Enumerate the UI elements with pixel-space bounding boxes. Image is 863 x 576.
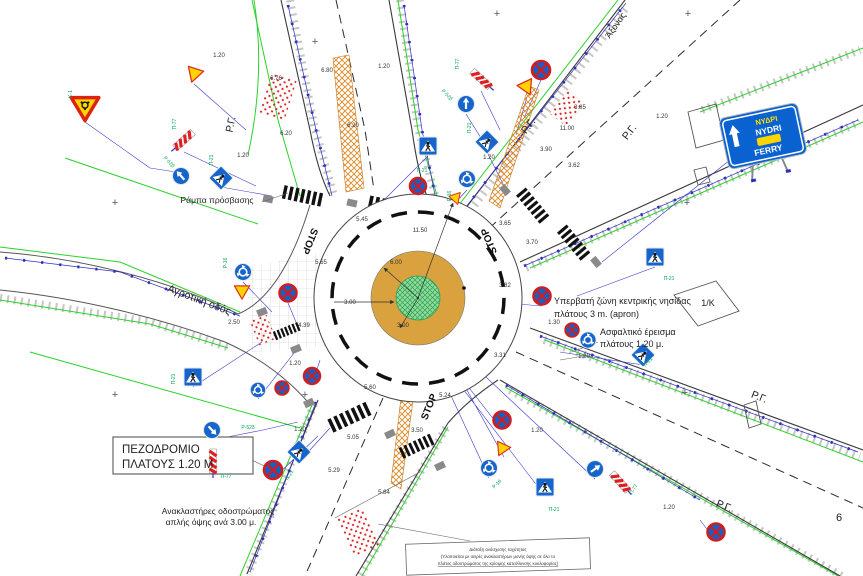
sign-code: Ρ-52β	[440, 88, 454, 102]
sign-code: Π-21	[285, 469, 296, 482]
dim: 5.24	[439, 393, 451, 399]
grid-cross: +	[682, 387, 688, 399]
grid-cross: +	[685, 8, 691, 20]
page-number: 6	[836, 512, 842, 524]
dim: 1.20	[378, 64, 390, 70]
block-label: 1/K	[701, 298, 715, 308]
dim: 1.20	[289, 361, 301, 367]
dim: 11.50	[413, 228, 428, 234]
roundabout-mandatory-sign	[481, 460, 498, 477]
pedestrian-crossing-sign	[536, 478, 554, 496]
nydri-ferry-sign	[718, 102, 811, 186]
sign-code: Π-77	[172, 118, 178, 129]
dim: 6.00	[390, 260, 402, 266]
dim: 5.60	[364, 385, 376, 391]
dim: 3.50	[411, 428, 423, 434]
sign-code: Π-21	[209, 154, 215, 165]
grid-cross: +	[494, 8, 500, 20]
dim: 3.85	[574, 105, 586, 111]
no-stopping-sign	[279, 284, 296, 301]
sign-code: Π-21	[549, 507, 560, 513]
no-stopping-sign	[275, 381, 289, 395]
no-stopping-sign	[304, 368, 320, 384]
pedestrian-crossing-sign	[209, 166, 233, 190]
hazard-marker-sign	[470, 68, 496, 93]
grid-cross: +	[312, 36, 318, 48]
dim: 1.20	[531, 428, 543, 434]
sign-code: Π-77	[455, 58, 461, 69]
no-stopping-sign	[493, 411, 510, 428]
sign-code: Π-21	[171, 373, 177, 384]
dim: 1.20	[483, 155, 495, 161]
dim: 3.65	[499, 221, 511, 227]
roundabout	[314, 194, 522, 402]
note-shoulder-line1: Ασφαλτικό έρεισμα	[600, 327, 676, 337]
dim: 1.30	[548, 320, 560, 326]
sign-code: Π-77	[629, 483, 640, 496]
sign-code: Ρ-16	[447, 191, 453, 202]
note-sidewalk-line1: ΠΕΖΟΔΡΟΜΙΟ	[122, 444, 200, 456]
sign-code: Π-21	[417, 168, 428, 174]
note-reflectors-line1: Ανακλαστήρες οδοστρώματος	[162, 506, 275, 516]
dim: 5.65	[315, 260, 327, 266]
dim: 5.84	[378, 490, 390, 496]
roundabout-mandatory-sign	[580, 332, 596, 348]
sign-code: Ρ-16	[491, 478, 503, 490]
grid-cross: +	[112, 197, 118, 209]
dim: 5.05	[347, 435, 359, 441]
warning-triangle-sign	[184, 66, 204, 84]
note-apron-line1: Υπερβατή ζώνη κεντρικής νησίδας	[554, 296, 691, 306]
dim: 6.76	[270, 76, 282, 82]
dim: 3.00	[344, 300, 356, 306]
mandatory-direction-sign	[458, 96, 475, 113]
dim: 5.29	[328, 468, 340, 474]
sign-code: Ρ-52β	[162, 155, 176, 169]
note-access-ramp: Ράμπα πρόσβασης	[180, 195, 253, 205]
no-stopping-sign	[410, 178, 426, 194]
dim: 5.45	[356, 217, 368, 223]
dim: 1.20	[656, 114, 668, 120]
roundabout-mandatory-sign	[250, 382, 265, 397]
pedestrian-crossing-sign	[419, 137, 437, 155]
pedestrian-crossing-sign	[646, 248, 664, 266]
note-box-line3: πλάτος οδοστρώματος της κρίσιμης κατεύθυ…	[438, 561, 559, 566]
site-plan-page: 1.206.766.801.206.206.201.205.4511.506.0…	[0, 0, 863, 576]
hazard-marker-sign	[169, 129, 195, 154]
dim: 1.20	[237, 153, 249, 159]
roundabout-mandatory-sign	[235, 264, 252, 281]
building-line-label: Ρ.Γ.	[224, 115, 239, 133]
no-stopping-sign	[707, 523, 724, 540]
sign-code: Π-77	[221, 474, 232, 480]
dim: 3.82	[499, 283, 511, 289]
pedestrian-crossing-sign	[184, 368, 202, 386]
dim: 1.20	[213, 53, 225, 59]
dim: 1.20	[578, 354, 590, 360]
note-reflectors-line2: απλής όψης ανά 3.00 μ.	[166, 517, 257, 527]
mandatory-direction-sign	[583, 457, 607, 481]
dim: 1.20	[663, 505, 675, 511]
roundabout-warning-sign	[71, 98, 99, 121]
no-stopping-sign	[565, 323, 579, 337]
sign-code: Ρ-52δ	[241, 425, 255, 431]
sign-code: Π-21	[664, 276, 675, 282]
dim: 2.50	[228, 320, 240, 326]
dim: 6.80	[321, 68, 333, 74]
grid-cross: +	[302, 389, 308, 401]
dim: 6.20	[280, 131, 292, 137]
note-apron-line2: πλάτους 3 m. (apron)	[554, 309, 639, 319]
dim: 3.31	[494, 353, 506, 359]
note-box-line1: Διάταξη ανάσχεσης ταχύτητας	[469, 547, 526, 552]
sign-code: Κ-1	[68, 90, 74, 98]
stop-marking: STOP	[299, 226, 319, 256]
dim: 1.20	[294, 427, 306, 433]
roundabout-plan-drawing: 1.206.766.801.206.206.201.205.4511.506.0…	[0, 0, 863, 576]
dim: 3.90	[540, 147, 552, 153]
pedestrian-crossing-sign	[287, 440, 311, 464]
dim: 3.70	[526, 240, 538, 246]
grid-cross: +	[684, 197, 690, 209]
note-shoulder-line2: πλάτους 1.20 μ.	[600, 339, 664, 349]
no-stopping-sign	[264, 461, 282, 479]
dim: 3.62	[568, 163, 580, 169]
note-box-line2: (Υλοποιείται με σειρές ανακλαστήρων μονή…	[441, 554, 556, 559]
building-line-label: Ρ.Γ.	[620, 122, 639, 142]
dim: 3.00	[397, 323, 409, 329]
no-stopping-sign	[532, 61, 550, 79]
dim: 4.39	[298, 323, 310, 329]
no-stopping-sign	[533, 287, 550, 304]
note-sidewalk-line2: ΠΛΑΤΟΥΣ 1.20 M	[122, 459, 213, 471]
sign-code: Π-21	[467, 122, 473, 133]
dim: 11.00	[560, 126, 575, 132]
grid-cross: +	[112, 389, 118, 401]
dim: 6.20	[347, 123, 359, 129]
roundabout-mandatory-sign	[459, 171, 476, 188]
road-name-rural: Αγροτική οδός	[166, 283, 233, 318]
sign-code: Ρ-16	[223, 258, 229, 269]
building-line-label: Ρ.Γ.	[749, 389, 768, 406]
